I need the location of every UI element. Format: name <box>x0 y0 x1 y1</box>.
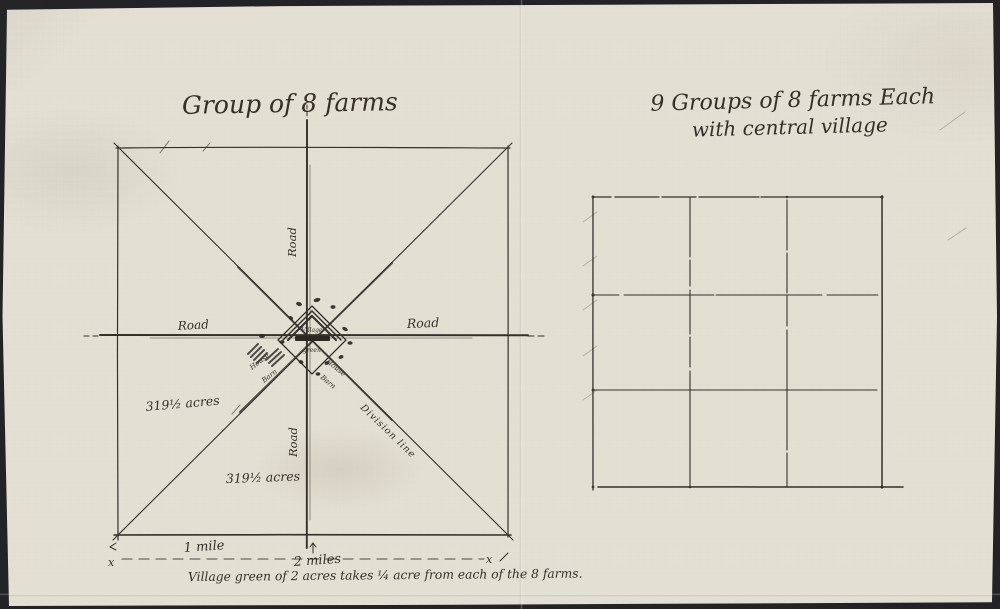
nine-group-grid <box>583 112 966 490</box>
grid-corner-dots <box>591 195 883 488</box>
farm-square <box>114 146 511 540</box>
village-label-line1: Village <box>302 327 323 334</box>
acreage-label-upper: 319½ acres <box>145 393 220 414</box>
left-farm-diagram: Group of 8 farms <box>84 87 583 584</box>
road-label-right: Road <box>406 315 440 331</box>
road-label-top: Road <box>285 227 299 258</box>
scale-one-mile: 1 mile <box>183 538 225 556</box>
village-green-bar <box>295 336 330 341</box>
pencil-tick-marks <box>583 112 966 400</box>
sketch-drawing: Group of 8 farms <box>0 0 1000 609</box>
right-grid-diagram: 9 Groups of 8 farms Each with central vi… <box>583 84 966 490</box>
right-title-line1: 9 Groups of 8 farms Each <box>650 84 935 116</box>
survey-tick-marks <box>160 141 240 414</box>
division-line-label: Division line <box>357 402 418 461</box>
diagonal-division-lines <box>113 143 513 540</box>
right-title-line2: with central village <box>692 112 889 141</box>
acreage-label-lower: 319½ acres <box>226 468 301 486</box>
road-label-bottom: Road <box>286 427 300 458</box>
village-label-line2: green <box>303 347 321 354</box>
scale-two-miles: 2 miles <box>292 552 342 570</box>
photographed-sketch: Group of 8 farms <box>0 0 1000 609</box>
caption: Village green of 2 acres takes ¼ acre fr… <box>188 567 583 584</box>
road-label-left: Road <box>176 317 209 333</box>
barn-label-se: Barn <box>318 373 337 391</box>
scale-marker-right: x <box>486 553 493 566</box>
left-title: Group of 8 farms <box>182 87 398 120</box>
house-label-se: House <box>324 357 347 378</box>
scale-marker-left: x <box>108 556 115 569</box>
